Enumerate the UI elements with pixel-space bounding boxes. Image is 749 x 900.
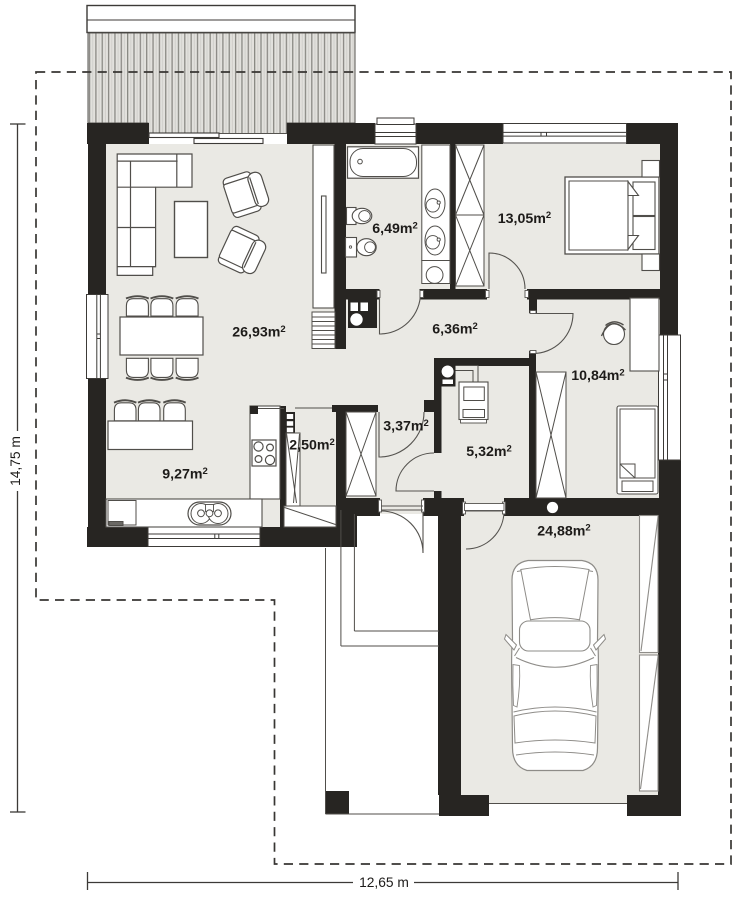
svg-text:14,75 m: 14,75 m xyxy=(8,436,23,486)
svg-text:9,27m2: 9,27m2 xyxy=(162,466,208,483)
svg-text:24,88m2: 24,88m2 xyxy=(537,523,590,540)
svg-text:10,84m2: 10,84m2 xyxy=(571,368,624,385)
svg-text:26,93m2: 26,93m2 xyxy=(232,324,285,341)
svg-text:6,49m2: 6,49m2 xyxy=(372,220,418,237)
svg-text:6,36m2: 6,36m2 xyxy=(432,321,478,338)
svg-text:5,32m2: 5,32m2 xyxy=(466,443,512,460)
svg-text:12,65 m: 12,65 m xyxy=(359,875,409,890)
svg-text:13,05m2: 13,05m2 xyxy=(498,210,551,227)
svg-text:3,37m2: 3,37m2 xyxy=(383,418,429,435)
svg-text:2,50m2: 2,50m2 xyxy=(289,437,335,454)
